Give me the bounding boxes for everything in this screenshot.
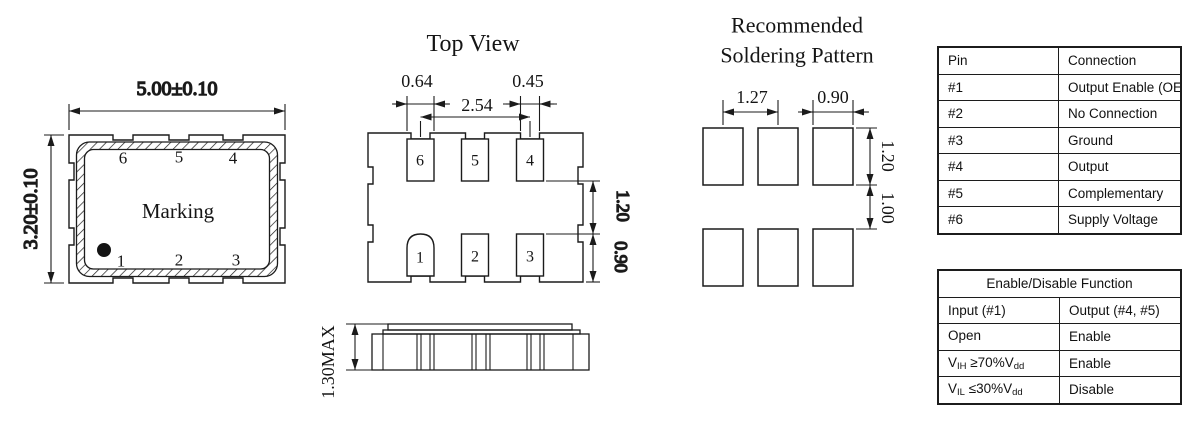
table-row: Pin Connection (938, 47, 1181, 74)
input-base: V (948, 355, 957, 370)
input-condition-cell: VIL ≤30%Vdd (938, 377, 1060, 404)
sp-pad-width-dim-label: 0.90 (817, 87, 849, 107)
side-view-body (372, 334, 589, 370)
input-condition-cell: VIH ≥70%Vdd (938, 350, 1060, 377)
package-outline-drawing: 6 5 4 1 2 3 Marking 5.00±0.10 3.20±0.10 (20, 78, 285, 283)
output-state-cell: Disable (1060, 377, 1182, 404)
enable-table-title: Enable/Disable Function (938, 270, 1181, 297)
input-sub1: IL (957, 387, 965, 398)
datasheet-page: 6 5 4 1 2 3 Marking 5.00±0.10 3.20±0.10 … (0, 0, 1200, 432)
tv-row-gap-dim-label: 1.20 (613, 190, 633, 222)
side-view-drawing: 1.30MAX (318, 324, 589, 399)
soldering-pads (703, 128, 853, 286)
input-condition-cell: Open (938, 324, 1060, 351)
pkg-pin-5-label: 5 (175, 148, 184, 167)
sp-pad-height-dim-label: 1.20 (878, 140, 898, 172)
pkg-pin-4-label: 4 (229, 149, 238, 168)
tv-pad-1-label: 1 (416, 250, 424, 267)
sp-pitch-dim-label: 1.27 (736, 87, 768, 107)
pkg-width-dim-label: 5.00±0.10 (137, 78, 218, 100)
table-row: VIH ≥70%Vdd Enable (938, 350, 1181, 377)
pkg-pin-2-label: 2 (175, 251, 184, 270)
pin-connection-table: Pin Connection #1 Output Enable (OE) #2 … (937, 46, 1182, 235)
tv-notch-width-dim-label: 0.45 (512, 71, 544, 91)
enable-table-header-output: Output (#4, #5) (1060, 297, 1182, 324)
input-sub2: dd (1014, 361, 1025, 372)
sp-row-gap-dim-label: 1.00 (878, 192, 898, 224)
tv-pad-6-label: 6 (416, 153, 424, 170)
input-mid: ≥70%V (967, 355, 1014, 370)
pkg-pin-3-label: 3 (232, 251, 241, 270)
soldering-pattern-drawing: Recommended Soldering Pattern 1.27 0.90 (703, 13, 898, 287)
enable-table-header-input: Input (#1) (938, 297, 1060, 324)
connection-cell: Output (1059, 154, 1182, 181)
pin-cell: #6 (938, 207, 1059, 234)
table-row: Enable/Disable Function (938, 270, 1181, 297)
marking-label: Marking (142, 199, 215, 223)
table-row: #4 Output (938, 154, 1181, 181)
connection-cell: No Connection (1059, 101, 1182, 128)
table-row: #1 Output Enable (OE) (938, 74, 1181, 101)
table-row: #2 No Connection (938, 101, 1181, 128)
input-base: V (948, 381, 957, 396)
input-base: Open (948, 328, 981, 343)
pkg-width-dimension (69, 104, 285, 130)
tv-pad-2-label: 2 (471, 249, 479, 266)
top-view-drawing: Top View 6 5 4 1 2 3 (368, 31, 633, 282)
soldering-title-line2: Soldering Pattern (720, 43, 873, 68)
tv-pad-3-label: 3 (526, 249, 534, 266)
pin1-index-dot (97, 243, 111, 257)
tv-right-dimensions (546, 181, 600, 282)
tv-pad-5-label: 5 (471, 153, 479, 170)
connection-cell: Complementary (1059, 180, 1182, 207)
pin-cell: #2 (938, 101, 1059, 128)
pkg-pin-1-label: 1 (117, 252, 126, 271)
side-view-height-dim-label: 1.30MAX (318, 325, 338, 399)
sp-right-dimensions (856, 128, 877, 229)
pin-cell: #4 (938, 154, 1059, 181)
tv-pad-height-dim-label: 0.90 (611, 241, 631, 273)
side-view-lid-upper (388, 324, 572, 330)
output-state-cell: Enable (1060, 324, 1182, 351)
table-row: Input (#1) Output (#4, #5) (938, 297, 1181, 324)
side-view-castellations (383, 334, 573, 370)
table-row: VIL ≤30%Vdd Disable (938, 377, 1181, 404)
tv-pitch-dim-label: 2.54 (461, 95, 493, 115)
table-row: #3 Ground (938, 127, 1181, 154)
input-sub2: dd (1012, 387, 1023, 398)
soldering-title-line1: Recommended (731, 13, 863, 38)
pin-cell: #5 (938, 180, 1059, 207)
pin-table-header-pin: Pin (938, 47, 1059, 74)
tv-pad-width-dim-label: 0.64 (401, 71, 433, 91)
connection-cell: Supply Voltage (1059, 207, 1182, 234)
pin-table-header-connection: Connection (1059, 47, 1182, 74)
pkg-height-dim-label: 3.20±0.10 (20, 169, 42, 250)
table-row: #5 Complementary (938, 180, 1181, 207)
pin-cell: #3 (938, 127, 1059, 154)
table-row: #6 Supply Voltage (938, 207, 1181, 234)
top-view-title: Top View (426, 31, 520, 57)
pin-cell: #1 (938, 74, 1059, 101)
input-sub1: IH (957, 361, 967, 372)
output-state-cell: Enable (1060, 350, 1182, 377)
tv-pad-4-label: 4 (526, 153, 534, 170)
connection-cell: Output Enable (OE) (1059, 74, 1182, 101)
enable-disable-table: Enable/Disable Function Input (#1) Outpu… (937, 269, 1182, 405)
pkg-height-dimension (44, 135, 64, 283)
pkg-pin-6-label: 6 (119, 149, 128, 168)
table-row: Open Enable (938, 324, 1181, 351)
input-mid: ≤30%V (965, 381, 1012, 396)
connection-cell: Ground (1059, 127, 1182, 154)
